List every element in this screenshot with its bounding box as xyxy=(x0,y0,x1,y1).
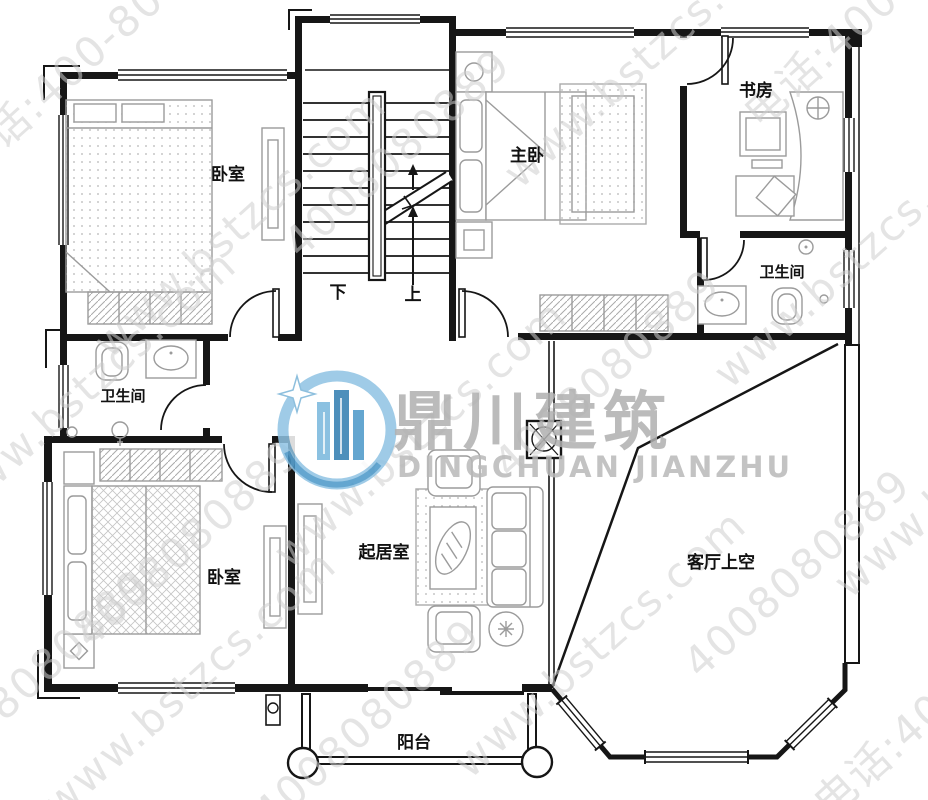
bay-window-glass-bottom xyxy=(645,750,748,764)
brand-logo xyxy=(279,376,391,485)
window-study-top xyxy=(721,27,809,38)
label-bath-right: 卫生间 xyxy=(759,263,804,281)
label-stairs-down: 下 xyxy=(330,283,347,303)
balcony-column-right xyxy=(522,747,552,777)
stair-direction-arrow xyxy=(408,164,418,285)
window-stair-top xyxy=(330,14,420,25)
window-bedroom2-left xyxy=(42,482,53,595)
label-living-room: 起居室 xyxy=(358,542,410,563)
side-table-living xyxy=(489,612,523,646)
window-study-right xyxy=(843,118,855,172)
bay-window-glass-right xyxy=(785,698,838,750)
window-master-top xyxy=(506,27,634,38)
coffee-table-living xyxy=(416,489,490,605)
label-bedroom1: 卧室 xyxy=(211,164,245,185)
label-void: 客厅上空 xyxy=(686,552,755,573)
label-bath-left: 卫生间 xyxy=(100,387,145,405)
label-stairs-up: 上 xyxy=(405,285,422,305)
brand-name-en: DINGCHUAN JIANZHU xyxy=(397,450,793,484)
label-study: 书房 xyxy=(739,80,773,101)
brand-name-cn: 鼎川建筑 xyxy=(393,386,673,460)
label-bedroom2: 卧室 xyxy=(207,567,241,588)
window-bedroom1-top xyxy=(118,69,287,81)
sofa-living xyxy=(487,487,543,607)
label-master-bedroom: 主卧 xyxy=(510,145,544,166)
wardrobe-bedroom2 xyxy=(100,449,222,481)
logo-building-right xyxy=(353,410,364,460)
door-bedroom1 xyxy=(230,289,279,337)
label-balcony: 阳台 xyxy=(397,732,431,753)
floor-plan: 电话:400-8080-889 www.bstzcs.com 400808088… xyxy=(0,0,928,800)
door-bath-left xyxy=(161,385,206,430)
watermark-text: www.bstzcs.com xyxy=(824,320,928,608)
watermark-text: 4008080889 xyxy=(244,609,490,800)
